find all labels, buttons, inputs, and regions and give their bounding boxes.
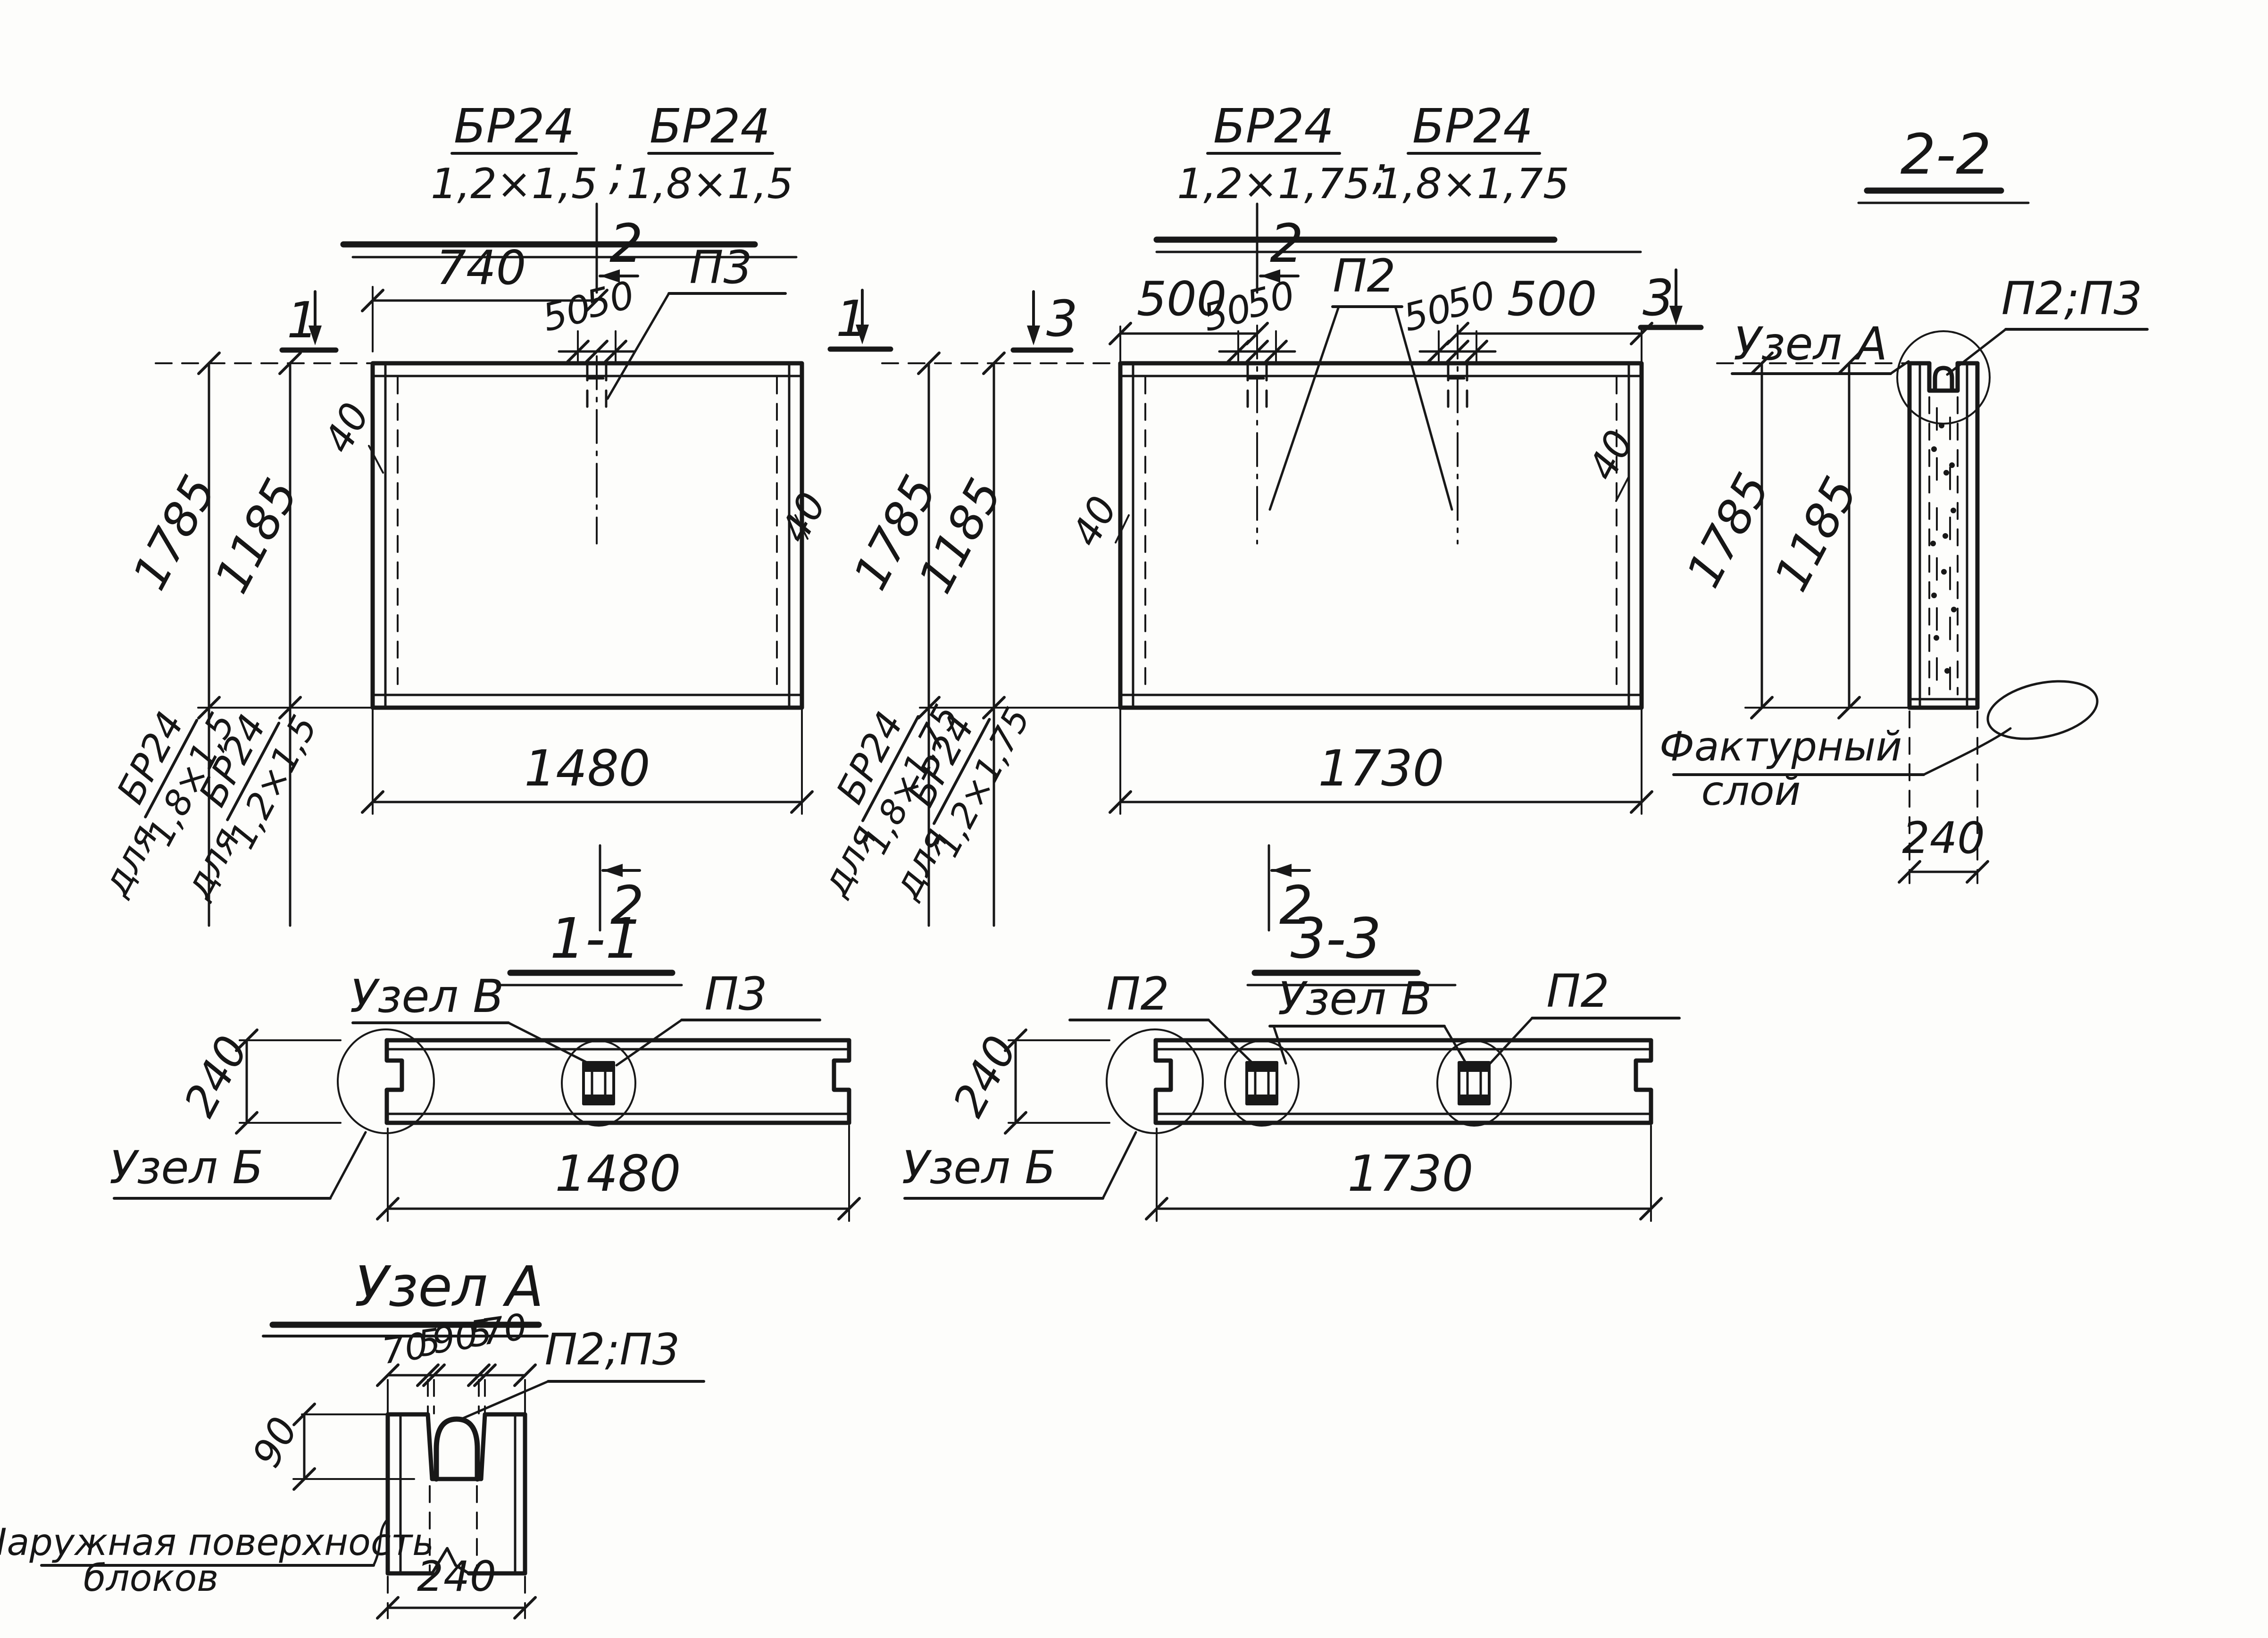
view2-dim-50-d: 50: [1443, 273, 1500, 327]
view2-block-outline: [1120, 363, 1642, 708]
section33-title: 3-3: [1291, 906, 1382, 971]
view1-dim-40-right: 40: [772, 485, 835, 550]
view2-title-den1: 1,2×1,75: [1177, 159, 1370, 208]
view2-insert-p2-label: П2: [1333, 250, 1395, 302]
view2-title-num2: БР24: [1412, 99, 1533, 154]
view1-block-outline: [373, 363, 802, 708]
section33-uzelV-label: Узел В: [1278, 972, 1432, 1025]
view1-title-den2: 1,8×1,5: [626, 159, 793, 208]
view2-section3-right-label: 3: [1643, 269, 1674, 327]
section22-title: 2-2: [1901, 122, 1992, 187]
section-1-1: 1-1 Узел В П3 240: [109, 906, 859, 1221]
uzelA-detail: Узел А 70 5 90 5 70 П2;П3 90: [0, 1254, 704, 1618]
section11-uzelV-label: Узел В: [350, 970, 504, 1023]
section22-factur-line1: Фактурный: [1659, 723, 1902, 770]
section22-dim-240: 240: [1902, 813, 1985, 863]
section-2-2: 2-2: [1659, 122, 2147, 883]
view2-dim-50-b: 50: [1242, 273, 1299, 327]
view1-dim-1480: 1480: [524, 740, 650, 797]
view1-section2-top-label: 2: [609, 213, 643, 275]
view1-title-num1: БР24: [454, 99, 575, 154]
view2-elevation: БР24 1,2×1,75 ; БР24 1,8×1,75 2 500 500 …: [812, 99, 1701, 936]
view2-dim-40-right: 40: [1580, 423, 1643, 488]
view2-dim-500-right: 500: [1507, 271, 1597, 326]
section33-bar-left-end: [1156, 1040, 1171, 1123]
section22-dim-1185: 1185: [1763, 468, 1868, 600]
view2-title-den2: 1,8×1,75: [1376, 159, 1569, 208]
section33-bar-right-end: [1636, 1040, 1651, 1123]
section33-dim-1730: 1730: [1347, 1145, 1473, 1203]
section11-bar-left-end: [387, 1040, 402, 1123]
concrete-dots: [1930, 423, 1957, 674]
section11-p3-label: П3: [704, 968, 767, 1020]
section33-uzelB-label: Узел Б: [902, 1141, 1056, 1194]
section11-uzelB-label: Узел Б: [109, 1141, 263, 1194]
uzelA-surface-line2: блоков: [83, 1557, 218, 1600]
section22-dim-1785: 1785: [1676, 464, 1781, 596]
section33-p2-left-label: П2: [1106, 968, 1169, 1020]
uzelA-p23-label: П2;П3: [545, 1324, 680, 1375]
section11-bar-right-end: [834, 1040, 849, 1123]
section22-column: [1909, 363, 1977, 708]
view1-title-sep: ;: [609, 145, 625, 200]
view2-title-num1: БР24: [1213, 99, 1334, 154]
blueprint-page: БР24 1,2×1,5 ; БР24 1,8×1,5 2 740 50 50 …: [0, 0, 2268, 1638]
view2-section2-top-label: 2: [1270, 213, 1303, 275]
section22-p23-label: П2;П3: [2001, 272, 2143, 325]
view2-section3-left-label: 3: [1046, 290, 1078, 348]
uzelA-dim-240: 240: [417, 1552, 496, 1601]
section11-title: 1-1: [550, 906, 641, 971]
view1-insert-p3-label: П3: [689, 241, 752, 294]
view2-dim-40-left: 40: [1063, 489, 1126, 554]
view1-dim-40-left: 40: [316, 396, 378, 460]
view2-dim-1730: 1730: [1318, 740, 1444, 797]
view1-elevation: БР24 1,2×1,5 ; БР24 1,8×1,5 2 740 50 50 …: [93, 99, 891, 936]
section33-p2-right-label: П2: [1546, 965, 1609, 1018]
section11-dim-1480: 1480: [555, 1145, 681, 1203]
view1-title-num2: БР24: [650, 99, 770, 154]
view1-dim-50-right: 50: [582, 273, 639, 327]
view1-dim-740: 740: [436, 240, 526, 295]
section-3-3: 3-3 П2 Узел В: [902, 906, 1679, 1221]
drawing-canvas: БР24 1,2×1,5 ; БР24 1,8×1,5 2 740 50 50 …: [0, 0, 2268, 1638]
view1-title-den1: 1,2×1,5: [431, 159, 598, 208]
uzelA-dim-70b: 70: [478, 1305, 529, 1354]
